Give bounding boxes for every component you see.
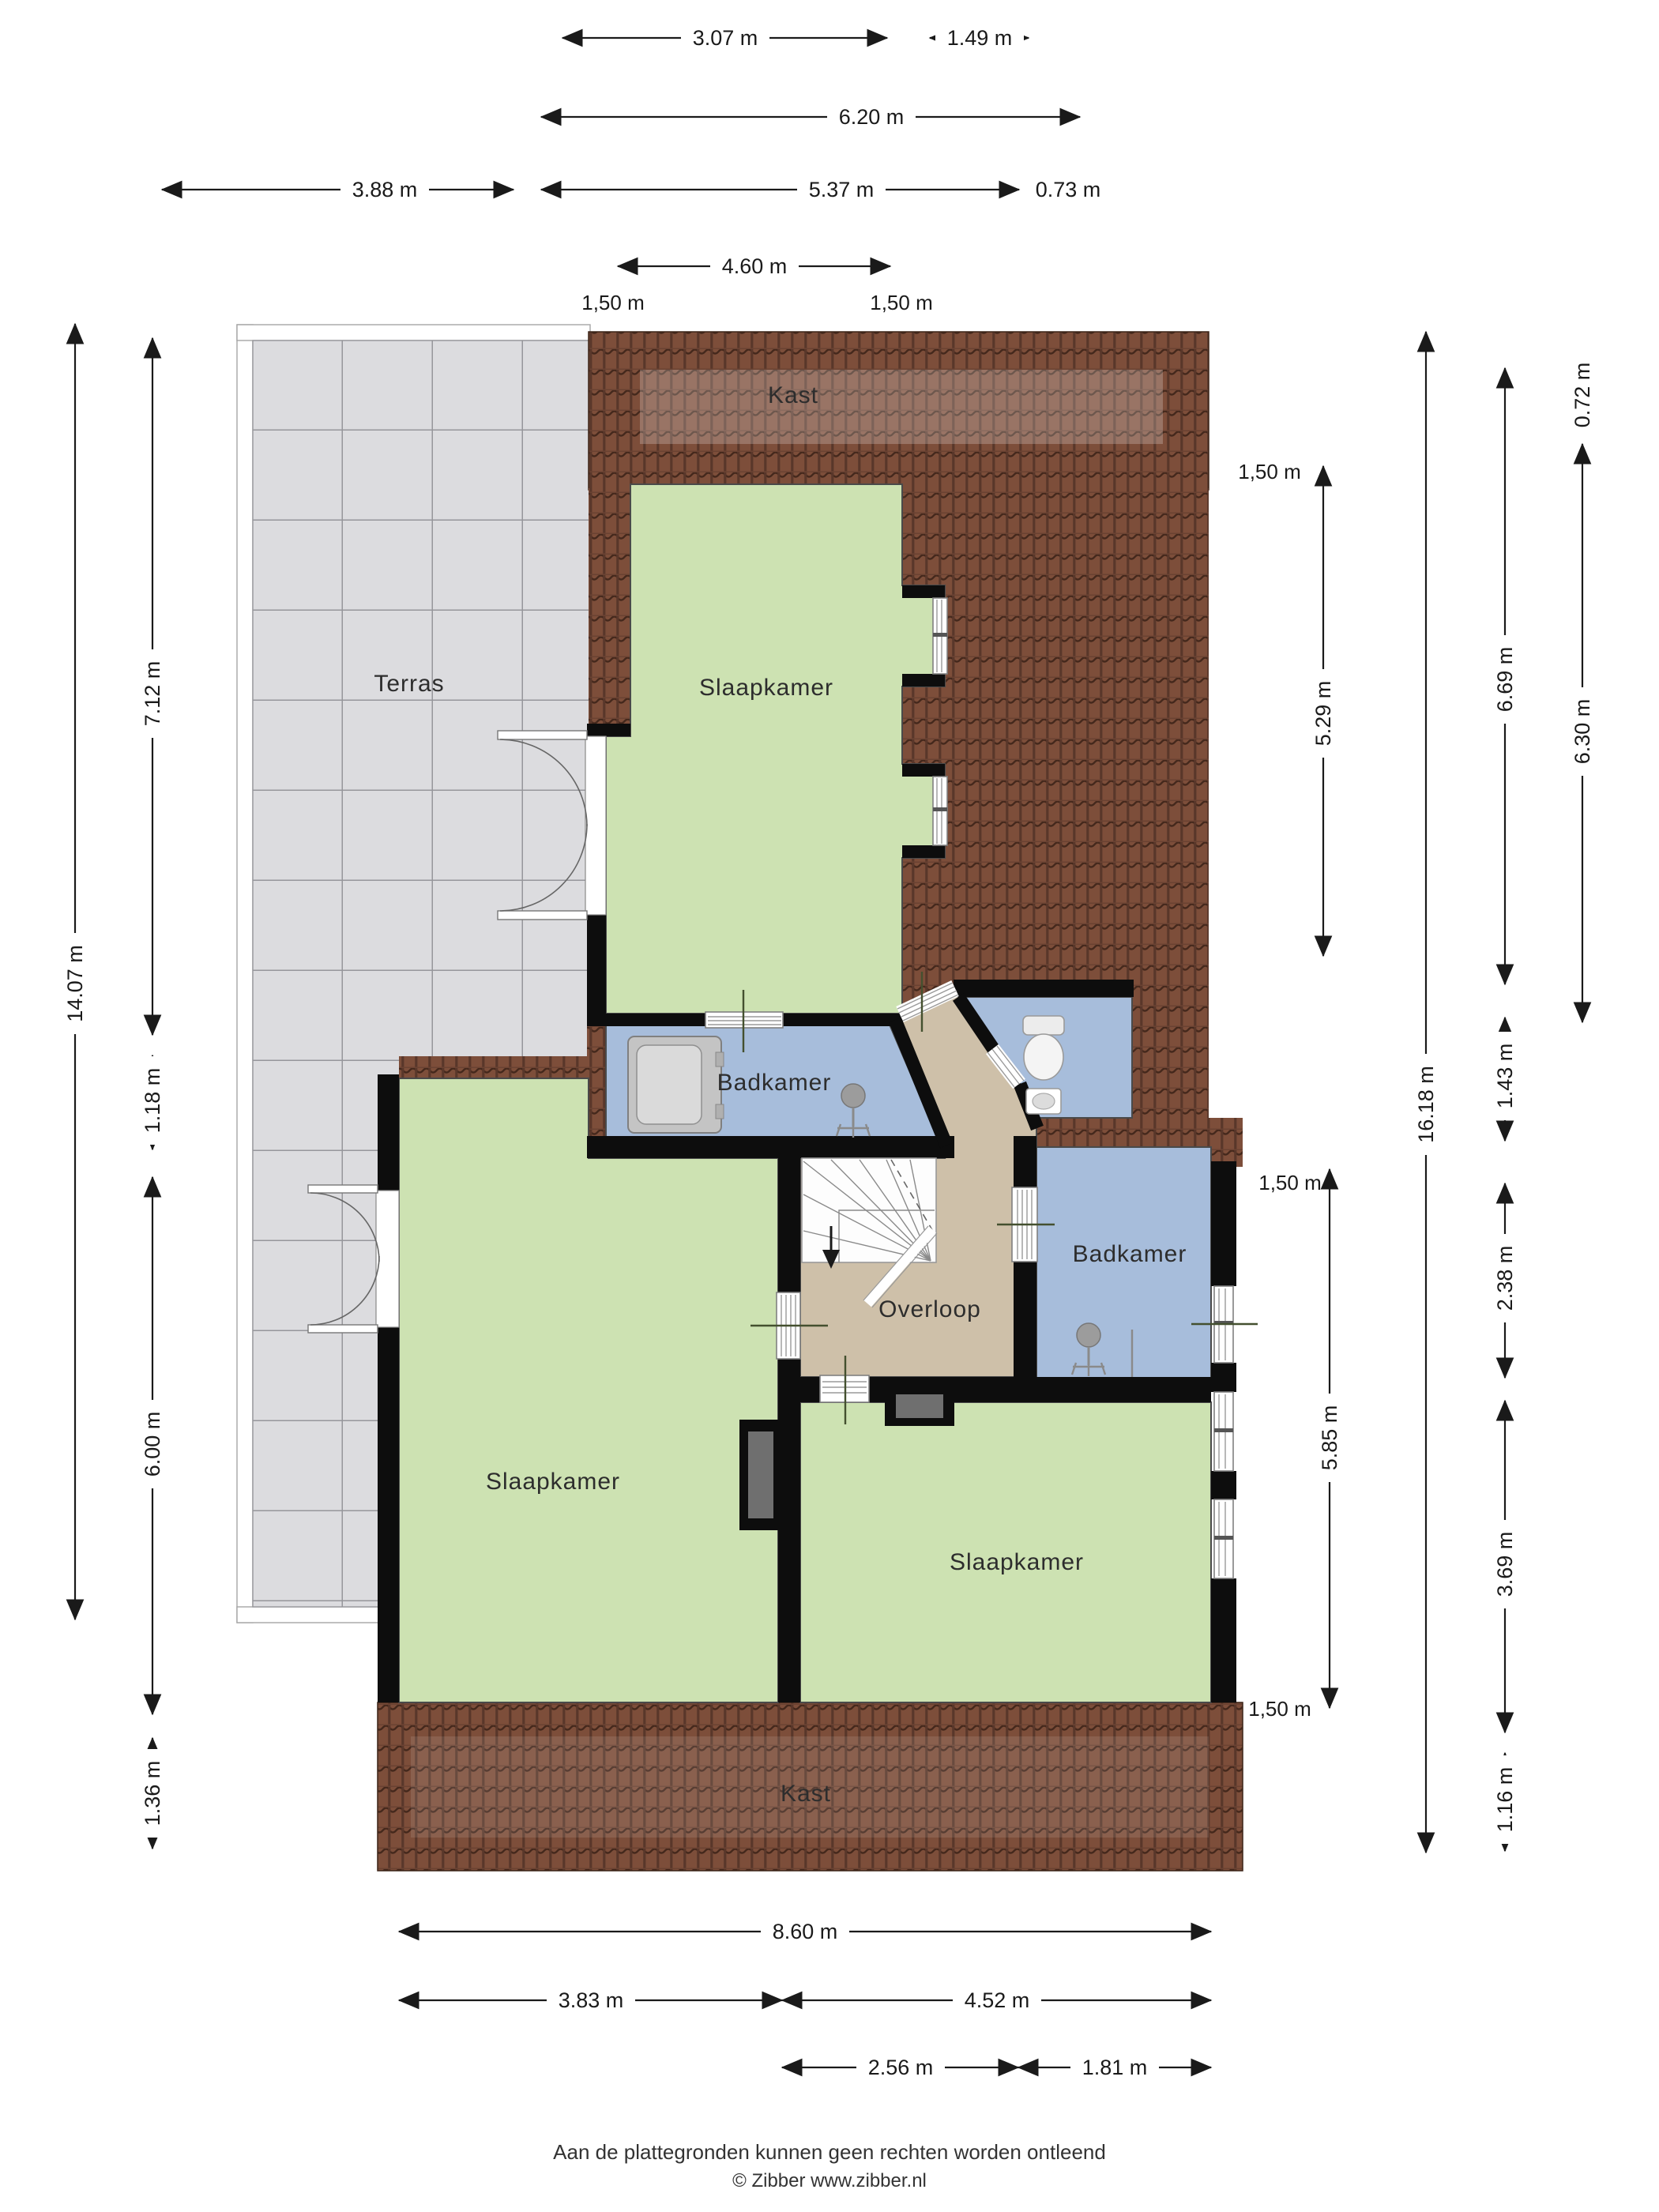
- label-badkamer-left: Badkamer: [717, 1070, 832, 1096]
- top-bedroom-window-2: [933, 777, 947, 845]
- dimensions-top: 3.07 m 1.49 m 6.20 m 3.88 m 5.37 m 0.73 …: [162, 25, 1100, 314]
- dim-bottom-4-52: 4.52 m: [782, 1988, 1211, 2014]
- label-terras: Terras: [374, 671, 444, 697]
- label-slaapkamer-left: Slaapkamer: [486, 1469, 620, 1495]
- dimensions-right: 1,50 m 5.29 m 1,50 m 5.85 m 1,50 m 16.18…: [1238, 332, 1596, 1853]
- dim-right-16-18: 16.18 m: [1413, 332, 1439, 1853]
- svg-text:8.60 m: 8.60 m: [773, 1920, 838, 1943]
- room-slaapkamer-top: [606, 484, 945, 1014]
- svg-text:6.00 m: 6.00 m: [141, 1412, 164, 1477]
- floorplan-svg: Kast Slaapkamer Terras Badkamer Overloop…: [0, 0, 1659, 2212]
- floorplan-page: Kast Slaapkamer Terras Badkamer Overloop…: [0, 0, 1659, 2212]
- svg-text:1.36 m: 1.36 m: [141, 1761, 164, 1826]
- label-slaapkamer-top: Slaapkamer: [699, 675, 833, 701]
- svg-text:1.49 m: 1.49 m: [947, 26, 1013, 50]
- dim-top-6-20: 6.20 m: [541, 104, 1080, 130]
- right-wall-window-3: [1214, 1499, 1233, 1578]
- svg-text:1.81 m: 1.81 m: [1082, 2056, 1148, 2079]
- terrace-railing-top: [237, 325, 590, 340]
- dim-bottom-3-83: 3.83 m: [399, 1988, 782, 2014]
- dim-right-150-top: 1,50 m: [1238, 460, 1301, 483]
- x: 14.07 m: [63, 945, 87, 1022]
- svg-text:5.29 m: 5.29 m: [1311, 681, 1335, 747]
- dim-top-150-right: 1,50 m: [870, 291, 933, 314]
- dim-top-3-07: 3.07 m: [562, 25, 887, 51]
- dim-left-7-12: 7.12 m: [139, 338, 166, 1035]
- svg-text:2.38 m: 2.38 m: [1493, 1246, 1517, 1311]
- svg-text:5.85 m: 5.85 m: [1318, 1405, 1341, 1471]
- dim-right-6-69: 6.69 m: [1492, 368, 1518, 984]
- svg-text:0.73 m: 0.73 m: [1036, 178, 1101, 201]
- dim-top-3-88: 3.88 m: [162, 177, 513, 203]
- svg-text:4.60 m: 4.60 m: [722, 254, 788, 278]
- room-slaapkamer-left: [399, 1078, 778, 1702]
- dim-bottom-2-56: 2.56 m: [782, 2055, 1018, 2081]
- svg-text:1.16 m: 1.16 m: [1493, 1767, 1517, 1833]
- right-wall-window-2: [1214, 1392, 1233, 1471]
- chimney-2: [885, 1388, 954, 1426]
- dim-right-5-29: 5.29 m: [1310, 466, 1337, 956]
- svg-text:3.83 m: 3.83 m: [559, 1988, 624, 2012]
- terrace-railing-bottom: [237, 1607, 387, 1623]
- svg-text:6.30 m: 6.30 m: [1571, 699, 1594, 765]
- bathtub-icon: [628, 1036, 724, 1133]
- dim-right-0-72: 0.72 m: [1569, 351, 1596, 439]
- svg-text:5.37 m: 5.37 m: [809, 178, 875, 201]
- svg-text:7.12 m: 7.12 m: [141, 661, 164, 727]
- roof-horizontal-strip-left: [399, 1056, 589, 1078]
- svg-text:1.43 m: 1.43 m: [1493, 1044, 1517, 1109]
- dimensions-left: 14.07 m 7.12 m 1.18 m 6.00 m 1.36 m: [62, 324, 166, 1849]
- svg-text:1.18 m: 1.18 m: [141, 1068, 164, 1134]
- svg-text:3.07 m: 3.07 m: [693, 26, 758, 50]
- dim-bottom-8-60: 8.60 m: [399, 1919, 1211, 1945]
- dim-top-0-73: 0.73 m: [1036, 178, 1101, 201]
- dim-top-4-60: 4.60 m: [618, 254, 890, 280]
- footer: Aan de plattegronden kunnen geen rechten…: [553, 2140, 1106, 2191]
- footer-credit: © Zibber www.zibber.nl: [732, 2170, 927, 2191]
- footer-disclaimer: Aan de plattegronden kunnen geen rechten…: [553, 2140, 1106, 2164]
- dim-left-1-18: 1.18 m: [139, 1055, 166, 1149]
- svg-text:2.56 m: 2.56 m: [868, 2056, 934, 2079]
- sink-icon: [1026, 1089, 1061, 1114]
- roof-right-block: [902, 488, 1209, 1014]
- svg-text:6.20 m: 6.20 m: [839, 105, 905, 129]
- dim-top-5-37: 5.37 m: [541, 177, 1019, 203]
- svg-text:6.69 m: 6.69 m: [1493, 647, 1517, 713]
- dim-top-150-left: 1,50 m: [581, 291, 645, 314]
- dim-left-6-00: 6.00 m: [139, 1177, 166, 1714]
- dim-left-14-07: 14.07 m: [62, 324, 88, 1619]
- svg-text:4.52 m: 4.52 m: [965, 1988, 1030, 2012]
- dim-bottom-1-81: 1.81 m: [1018, 2055, 1211, 2081]
- dim-right-150-mid: 1,50 m: [1258, 1171, 1322, 1194]
- roof-right-corner: [1211, 1118, 1243, 1167]
- roof-left-narrow-strip: [587, 1026, 606, 1136]
- dim-right-5-85: 5.85 m: [1316, 1169, 1343, 1708]
- label-badkamer-right: Badkamer: [1073, 1241, 1187, 1267]
- dim-top-1-49: 1.49 m: [930, 25, 1029, 51]
- terrace-railing-left: [237, 325, 253, 1623]
- chimney: [739, 1420, 782, 1530]
- toilet-icon: [1023, 1016, 1064, 1080]
- top-bedroom-window-1: [933, 598, 947, 674]
- dim-right-150-bot: 1,50 m: [1248, 1697, 1311, 1721]
- label-kast-top: Kast: [768, 382, 818, 408]
- svg-text:3.88 m: 3.88 m: [352, 178, 418, 201]
- dim-right-1-16: 1.16 m: [1492, 1753, 1518, 1851]
- kast-top-area: [640, 370, 1163, 444]
- dim-right-3-69: 3.69 m: [1492, 1401, 1518, 1732]
- roof-left-strip: [589, 488, 630, 725]
- dim-right-2-38: 2.38 m: [1492, 1183, 1518, 1378]
- svg-text:16.18 m: 16.18 m: [1414, 1066, 1438, 1143]
- svg-text:3.69 m: 3.69 m: [1493, 1532, 1517, 1597]
- dim-left-1-36: 1.36 m: [139, 1738, 166, 1849]
- label-slaapkamer-right: Slaapkamer: [950, 1549, 1084, 1575]
- dim-right-1-43: 1.43 m: [1492, 1018, 1518, 1141]
- svg-text:0.72 m: 0.72 m: [1571, 363, 1594, 428]
- dim-right-6-30: 6.30 m: [1569, 444, 1596, 1022]
- dimensions-bottom: 8.60 m 3.83 m 4.52 m 2.56 m 1.81 m: [399, 1919, 1211, 2081]
- label-kast-bottom: Kast: [781, 1781, 831, 1807]
- label-overloop: Overloop: [878, 1296, 981, 1322]
